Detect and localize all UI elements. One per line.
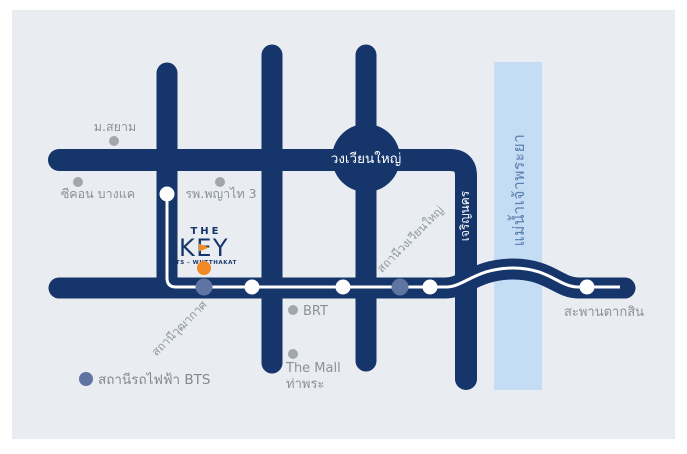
bts-station-marker (423, 280, 438, 295)
legend-bts-station-dot (79, 372, 93, 386)
legend: สถานีรถไฟฟ้า BTS (79, 372, 211, 388)
chao-phraya-river-label: แม่น้ำเจ้าพระยา (507, 134, 528, 247)
bts-station-marker (160, 187, 175, 202)
taksin-bridge-label: สะพานตากสิน (564, 305, 644, 320)
bts-station-wongwian-yai-marker (392, 279, 409, 296)
seacon-bangkae-label: ซีคอน บางแค (61, 186, 135, 201)
the-mall-dot (288, 349, 298, 359)
wongwian-yai-roundabout-label: วงเวียนใหญ่ (331, 150, 402, 167)
brt-label: BRT (303, 304, 328, 319)
legend-bts-station-label: สถานีรถไฟฟ้า BTS (98, 372, 211, 388)
phyathai-3-hospital-label: รพ.พญาไท 3 (185, 186, 256, 201)
bts-station-marker (580, 280, 595, 295)
bts-station-marker (245, 280, 260, 295)
project-location-dot (197, 261, 211, 275)
charoen-nakhon-road-label: เจริญนคร (458, 190, 472, 241)
the-mall-label-line1: The Mall (285, 361, 341, 376)
the-mall-label-line2: ท่าพระ (286, 377, 324, 392)
bts-station-wutthakat-marker (196, 279, 213, 296)
bts-station-marker (336, 280, 351, 295)
siam-university-label: ม.สยาม (94, 119, 136, 134)
brt-dot (288, 305, 298, 315)
location-map-svg: แม่น้ำเจ้าพระยา วงเวียนใหญ่ เจริญนคร สถา… (0, 0, 687, 454)
siam-university-dot (109, 136, 119, 146)
map-screenshot: แม่น้ำเจ้าพระยา วงเวียนใหญ่ เจริญนคร สถา… (0, 0, 687, 454)
